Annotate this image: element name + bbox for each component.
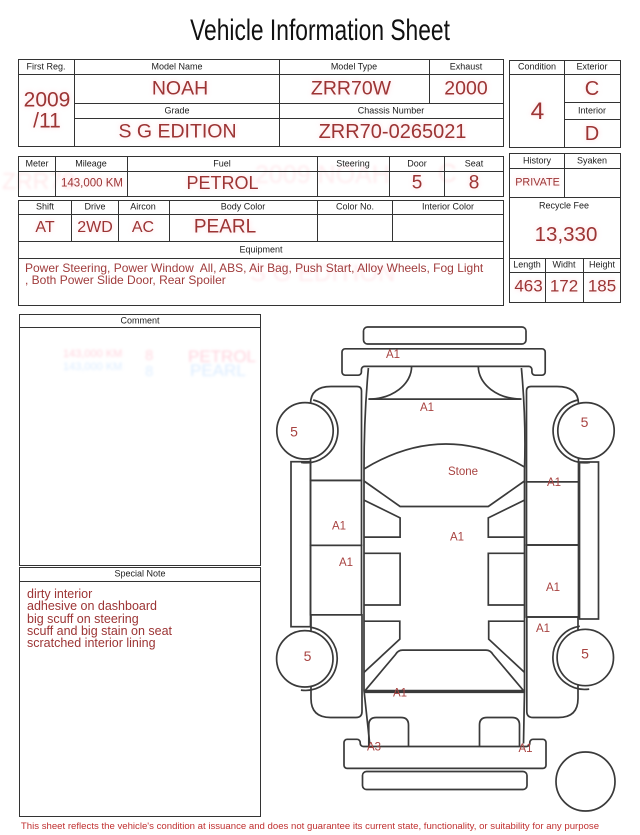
svg-text:A1: A1	[450, 532, 464, 544]
svg-text:A1: A1	[332, 521, 346, 533]
svg-text:A1: A1	[386, 349, 400, 361]
svg-text:5: 5	[581, 414, 589, 430]
svg-text:A1: A1	[536, 623, 550, 635]
svg-text:A1: A1	[393, 688, 407, 700]
svg-text:5: 5	[581, 646, 589, 662]
svg-text:A1: A1	[546, 582, 560, 594]
svg-text:A3: A3	[367, 742, 381, 754]
svg-text:A1: A1	[339, 557, 353, 569]
svg-text:A1: A1	[518, 743, 532, 755]
svg-text:5: 5	[304, 648, 312, 664]
svg-text:Stone: Stone	[448, 466, 478, 478]
svg-text:A1: A1	[547, 477, 561, 489]
svg-text:5: 5	[290, 424, 298, 440]
svg-text:A1: A1	[420, 402, 434, 414]
